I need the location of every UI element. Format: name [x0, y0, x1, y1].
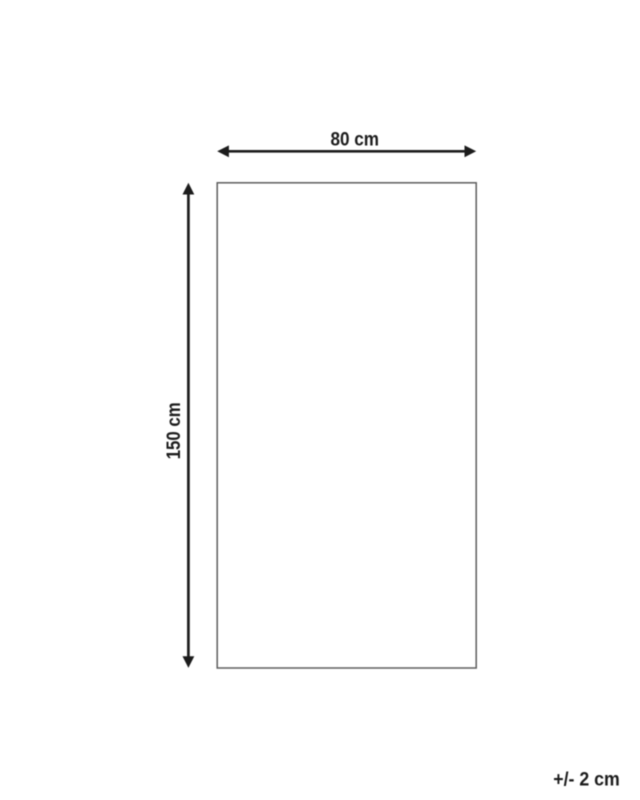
svg-text:150 cm: 150 cm — [164, 402, 185, 459]
svg-text:+/- 2 cm: +/- 2 cm — [553, 769, 620, 790]
svg-text:80 cm: 80 cm — [330, 130, 379, 151]
